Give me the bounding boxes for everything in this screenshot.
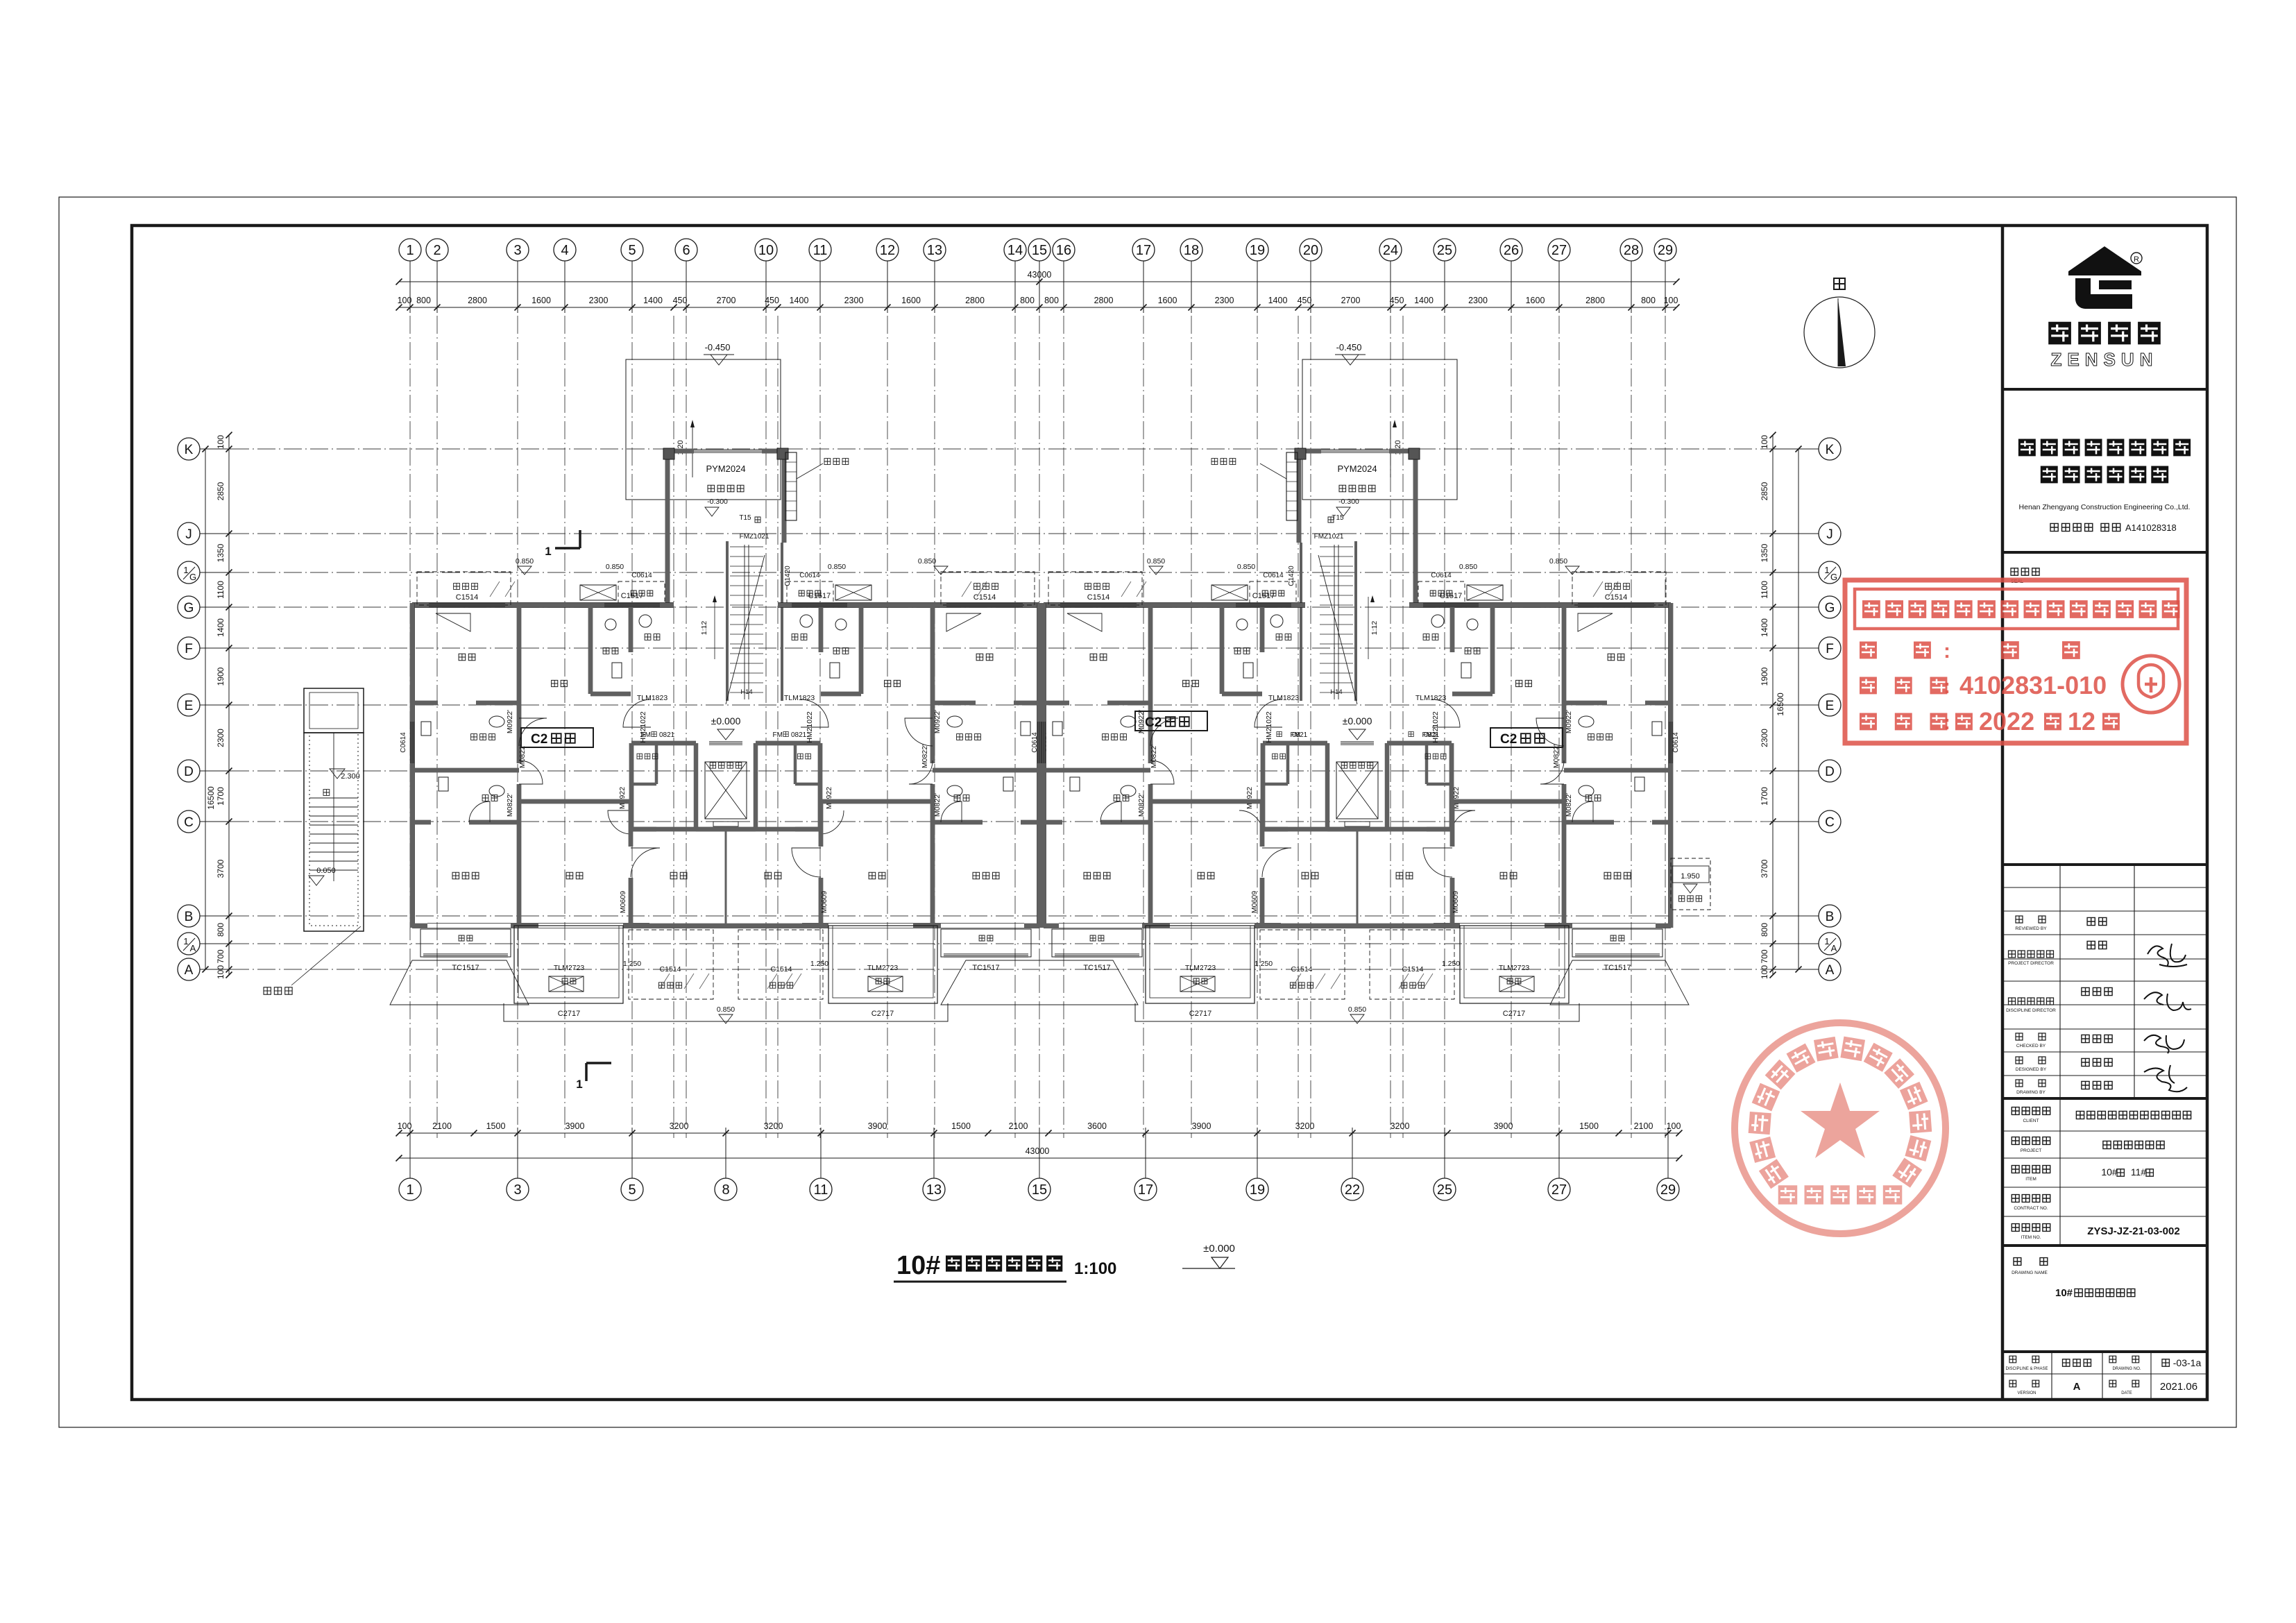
- svg-text:0.850: 0.850: [1549, 557, 1567, 566]
- svg-text:C0614: C0614: [1431, 572, 1452, 579]
- svg-text:1400: 1400: [1760, 618, 1769, 637]
- svg-text:M0609: M0609: [619, 891, 627, 913]
- svg-text:2800: 2800: [468, 296, 487, 305]
- svg-text:TC1517: TC1517: [1604, 964, 1631, 972]
- svg-text:VERSION: VERSION: [2017, 1391, 2036, 1395]
- svg-text:2800: 2800: [1094, 296, 1114, 305]
- svg-text:0.850: 0.850: [717, 1005, 735, 1014]
- svg-text:±0.000: ±0.000: [1343, 715, 1372, 726]
- svg-text:0.050: 0.050: [316, 867, 336, 875]
- svg-text:DISCIPLINE DIRECTOR: DISCIPLINE DIRECTOR: [2006, 1008, 2056, 1013]
- svg-text:TC1517: TC1517: [452, 964, 479, 972]
- svg-text:450: 450: [765, 296, 779, 305]
- svg-text:16500: 16500: [1776, 692, 1785, 716]
- svg-text:TLM2723: TLM2723: [1499, 964, 1530, 972]
- svg-text:4: 4: [561, 243, 568, 258]
- svg-text:G: G: [1825, 601, 1835, 615]
- svg-text:A: A: [1826, 963, 1835, 978]
- svg-text:0.850: 0.850: [1459, 563, 1477, 571]
- svg-text:REVIEWED BY: REVIEWED BY: [2015, 926, 2047, 931]
- svg-text:B: B: [1826, 910, 1835, 924]
- svg-text:24: 24: [1383, 243, 1398, 258]
- svg-text:C2717: C2717: [1189, 1010, 1211, 1018]
- svg-text:D: D: [1825, 765, 1835, 779]
- svg-text::: :: [1944, 711, 1950, 734]
- svg-text:1500: 1500: [486, 1121, 506, 1131]
- svg-text:TLM1823: TLM1823: [1415, 694, 1447, 702]
- svg-text:A: A: [1831, 943, 1837, 953]
- svg-text:18: 18: [1184, 243, 1199, 258]
- svg-text:3900: 3900: [1192, 1121, 1211, 1131]
- svg-text:1350: 1350: [216, 543, 226, 562]
- svg-text:22: 22: [1345, 1182, 1360, 1198]
- svg-text:C0614: C0614: [1031, 732, 1039, 753]
- svg-text:2300: 2300: [1215, 296, 1234, 305]
- svg-text:3600: 3600: [1087, 1121, 1107, 1131]
- svg-text:11: 11: [813, 243, 828, 258]
- svg-text:A141028318: A141028318: [2125, 522, 2177, 533]
- svg-text::: :: [1944, 675, 1950, 698]
- svg-text:2100: 2100: [432, 1121, 452, 1131]
- svg-text:C1514: C1514: [1291, 965, 1313, 974]
- svg-text:C: C: [184, 815, 194, 830]
- svg-text:M0609: M0609: [1452, 891, 1460, 913]
- svg-text:1: 1: [183, 565, 188, 575]
- svg-text:800: 800: [1760, 923, 1769, 937]
- svg-text:27: 27: [1551, 243, 1567, 258]
- svg-text:PYM2024: PYM2024: [706, 464, 745, 474]
- svg-text:1700: 1700: [216, 787, 226, 806]
- svg-text:C2: C2: [531, 732, 547, 747]
- svg-text:100: 100: [398, 1121, 412, 1131]
- svg-text:G: G: [184, 601, 194, 615]
- svg-text:TLM2723: TLM2723: [867, 964, 899, 972]
- svg-text:3900: 3900: [566, 1121, 585, 1131]
- svg-text:2850: 2850: [216, 482, 226, 500]
- svg-text:TC1517: TC1517: [1083, 964, 1110, 972]
- svg-text:100: 100: [216, 435, 226, 449]
- svg-text:C0614: C0614: [631, 572, 652, 579]
- svg-text:1.250: 1.250: [623, 960, 641, 968]
- svg-text:HM21022: HM21022: [1265, 711, 1273, 743]
- svg-text:E: E: [185, 699, 194, 713]
- svg-text:0.850: 0.850: [1237, 563, 1255, 571]
- svg-text:C1517: C1517: [808, 592, 831, 600]
- svg-text:C2717: C2717: [871, 1010, 894, 1018]
- svg-text:0821: 0821: [659, 731, 675, 739]
- svg-text:TLM1823: TLM1823: [1268, 694, 1300, 702]
- svg-text:800: 800: [1044, 296, 1059, 305]
- svg-text:±0.000: ±0.000: [1203, 1243, 1235, 1255]
- svg-text:F: F: [1826, 642, 1834, 656]
- svg-text:13: 13: [926, 1182, 942, 1198]
- svg-text:3200: 3200: [1295, 1121, 1315, 1131]
- svg-text:2100: 2100: [1634, 1121, 1653, 1131]
- svg-text:M0822': M0822': [518, 745, 527, 768]
- svg-text:1400: 1400: [216, 618, 226, 637]
- svg-text:DRAWING NO.: DRAWING NO.: [2112, 1367, 2141, 1371]
- svg-text:-0.450: -0.450: [1336, 342, 1362, 352]
- svg-text:DESIGNED BY: DESIGNED BY: [2016, 1067, 2047, 1072]
- svg-text:3: 3: [513, 243, 521, 258]
- svg-text:1: 1: [545, 545, 551, 558]
- svg-text:2.300: 2.300: [341, 772, 360, 781]
- svg-text:DRAWING BY: DRAWING BY: [2016, 1090, 2046, 1095]
- svg-text:43000: 43000: [1026, 1146, 1050, 1156]
- svg-text:10#: 10#: [2101, 1166, 2118, 1178]
- svg-text:C1514: C1514: [456, 593, 478, 602]
- svg-text:M0609: M0609: [820, 891, 828, 913]
- svg-text:CONTRACT NO.: CONTRACT NO.: [2014, 1206, 2048, 1211]
- svg-text:11: 11: [814, 1182, 828, 1198]
- svg-text:-0.300: -0.300: [1338, 498, 1359, 506]
- svg-text:TLM2723: TLM2723: [554, 964, 585, 972]
- svg-text:1: 1: [406, 1182, 414, 1198]
- svg-text:1600: 1600: [901, 296, 921, 305]
- svg-text:2800: 2800: [1585, 296, 1605, 305]
- svg-text:1350: 1350: [1760, 543, 1769, 562]
- svg-text:M0822': M0822': [933, 793, 942, 817]
- svg-text:1900: 1900: [216, 667, 226, 686]
- svg-text:H14: H14: [740, 688, 752, 696]
- svg-text:1700: 1700: [1760, 787, 1769, 806]
- svg-text:DATE: DATE: [2121, 1391, 2132, 1395]
- svg-text:1:12: 1:12: [700, 621, 708, 636]
- svg-text:1400: 1400: [643, 296, 663, 305]
- svg-text:2300: 2300: [844, 296, 864, 305]
- svg-text:C2717: C2717: [558, 1010, 580, 1018]
- svg-text:10#: 10#: [2055, 1287, 2073, 1299]
- svg-text:PROJECT: PROJECT: [2021, 1148, 2041, 1153]
- svg-text:1:100: 1:100: [1074, 1259, 1116, 1278]
- svg-text:1: 1: [1824, 565, 1829, 575]
- svg-text:K: K: [1826, 443, 1835, 457]
- svg-text:H14: H14: [1330, 688, 1342, 696]
- svg-text:TC1517: TC1517: [972, 964, 999, 972]
- svg-text:C2: C2: [1145, 715, 1162, 730]
- svg-text:C1420: C1420: [784, 566, 792, 586]
- svg-text:1: 1: [406, 243, 414, 258]
- svg-text:ITEM: ITEM: [2025, 1177, 2036, 1182]
- svg-text:4102831-010: 4102831-010: [1959, 671, 2107, 699]
- svg-text:FM: FM: [773, 731, 783, 739]
- svg-text:3700: 3700: [1760, 859, 1769, 878]
- svg-text:10: 10: [758, 243, 774, 258]
- svg-text:PYM2024: PYM2024: [1337, 464, 1377, 474]
- svg-text:2022: 2022: [1979, 707, 2034, 736]
- svg-text:DRAWING NAME: DRAWING NAME: [2012, 1271, 2048, 1275]
- svg-text:C1517: C1517: [621, 592, 643, 600]
- svg-text:3900: 3900: [868, 1121, 887, 1131]
- svg-text:1600: 1600: [1526, 296, 1545, 305]
- svg-text:C1514: C1514: [660, 965, 681, 974]
- svg-text:800: 800: [1020, 296, 1035, 305]
- svg-text:M0822': M0822': [1150, 745, 1158, 768]
- svg-text:M0922': M0922': [1565, 710, 1573, 733]
- svg-text:TLM1823: TLM1823: [637, 694, 668, 702]
- svg-text:C1514: C1514: [1605, 593, 1627, 602]
- svg-text:C1517: C1517: [1252, 592, 1275, 600]
- svg-text:2300: 2300: [1468, 296, 1488, 305]
- svg-text:M0922: M0922: [825, 787, 833, 809]
- svg-text:17: 17: [1136, 243, 1151, 258]
- svg-text:10#: 10#: [896, 1251, 940, 1280]
- svg-text:800: 800: [216, 923, 226, 937]
- svg-text:8: 8: [722, 1182, 729, 1198]
- svg-text:100: 100: [398, 296, 412, 305]
- svg-text:C2717: C2717: [1503, 1010, 1525, 1018]
- svg-text:800: 800: [1641, 296, 1656, 305]
- svg-text:1600: 1600: [1158, 296, 1177, 305]
- svg-text:100: 100: [1760, 435, 1769, 449]
- svg-text:0821: 0821: [1292, 731, 1308, 739]
- svg-text:ITEM NO.: ITEM NO.: [2021, 1235, 2041, 1240]
- svg-text:450: 450: [673, 296, 688, 305]
- svg-text:G: G: [1830, 572, 1837, 582]
- svg-text:2100: 2100: [1009, 1121, 1028, 1131]
- svg-text:B: B: [185, 910, 194, 924]
- svg-text:1: 1: [1824, 936, 1829, 946]
- svg-text:1.250: 1.250: [810, 960, 828, 968]
- svg-text:1:12: 1:12: [1370, 621, 1379, 636]
- svg-text:1.950: 1.950: [1681, 872, 1700, 881]
- svg-text:M0822': M0822': [506, 793, 514, 817]
- svg-text:M0609: M0609: [1250, 891, 1259, 913]
- svg-text:G: G: [189, 572, 196, 582]
- svg-text:1100: 1100: [1760, 581, 1769, 599]
- svg-text:F: F: [185, 642, 193, 656]
- svg-text:CLIENT: CLIENT: [2023, 1119, 2039, 1123]
- svg-text:M0822': M0822': [1137, 793, 1146, 817]
- svg-text:2021.06: 2021.06: [2160, 1381, 2197, 1393]
- svg-text:5: 5: [628, 243, 636, 258]
- svg-text:M0822': M0822': [1565, 793, 1573, 817]
- svg-text:1600: 1600: [532, 296, 551, 305]
- svg-text:2700: 2700: [717, 296, 736, 305]
- svg-text:A: A: [190, 943, 196, 953]
- svg-text:0821: 0821: [791, 731, 807, 739]
- svg-text:19: 19: [1250, 1182, 1265, 1198]
- svg-text:M0822': M0822': [921, 745, 929, 768]
- svg-text:HM21022: HM21022: [639, 711, 647, 743]
- svg-text:100: 100: [1760, 965, 1769, 979]
- svg-text:2300: 2300: [589, 296, 609, 305]
- svg-text:1400: 1400: [790, 296, 809, 305]
- svg-text:15: 15: [1032, 243, 1047, 258]
- svg-text:PROJECT DIRECTOR: PROJECT DIRECTOR: [2008, 961, 2054, 966]
- svg-text:0.850: 0.850: [1147, 557, 1165, 566]
- svg-text:Henan Zhengyang Construction E: Henan Zhengyang Construction Engineering…: [2019, 503, 2191, 511]
- svg-text:-03-1a: -03-1a: [2173, 1357, 2202, 1368]
- svg-text:3700: 3700: [216, 859, 226, 878]
- svg-text:M0922: M0922: [1245, 787, 1254, 809]
- svg-text:450: 450: [1390, 296, 1404, 305]
- svg-text:C1517: C1517: [1440, 592, 1462, 600]
- svg-text:DISCIPLINE & PHASE: DISCIPLINE & PHASE: [2005, 1367, 2048, 1371]
- svg-text:100: 100: [216, 965, 226, 979]
- svg-text:HM21022: HM21022: [1431, 711, 1440, 743]
- svg-text:3200: 3200: [670, 1121, 689, 1131]
- svg-text:C0614: C0614: [400, 732, 407, 753]
- svg-text:M0922': M0922': [506, 710, 514, 733]
- svg-text:A: A: [2073, 1381, 2081, 1393]
- svg-text:28: 28: [1624, 243, 1639, 258]
- svg-text:29: 29: [1658, 243, 1673, 258]
- svg-text:M0922: M0922: [618, 787, 627, 809]
- svg-text:1400: 1400: [1268, 296, 1288, 305]
- svg-text:100: 100: [1664, 296, 1678, 305]
- svg-text:17: 17: [1138, 1182, 1153, 1198]
- svg-text:1: 1: [183, 936, 188, 946]
- svg-text:CHECKED BY: CHECKED BY: [2016, 1044, 2046, 1048]
- svg-text:T15: T15: [739, 514, 751, 522]
- svg-text:HM21022: HM21022: [806, 711, 814, 743]
- svg-text:C2: C2: [1500, 732, 1517, 747]
- svg-text:11#: 11#: [2131, 1166, 2147, 1178]
- svg-text:1400: 1400: [1414, 296, 1434, 305]
- svg-text:±0.000: ±0.000: [711, 715, 741, 726]
- svg-text:0.850: 0.850: [516, 557, 534, 566]
- svg-text:25: 25: [1437, 243, 1452, 258]
- svg-text:100: 100: [1667, 1121, 1681, 1131]
- svg-text:16500: 16500: [206, 786, 216, 810]
- svg-text:2850: 2850: [1760, 482, 1769, 500]
- svg-text:C: C: [1825, 815, 1835, 830]
- svg-text:15: 15: [1032, 1182, 1047, 1198]
- svg-text:ZYSJ-JZ-21-03-002: ZYSJ-JZ-21-03-002: [2087, 1225, 2179, 1237]
- svg-text:C0614: C0614: [1672, 732, 1680, 753]
- svg-text:C1514: C1514: [973, 593, 996, 602]
- svg-text:0.850: 0.850: [606, 563, 624, 571]
- svg-text:1500: 1500: [1579, 1121, 1599, 1131]
- svg-text:700: 700: [1760, 949, 1769, 963]
- svg-text:M0822': M0822': [1552, 745, 1561, 768]
- svg-text:3200: 3200: [1391, 1121, 1410, 1131]
- svg-text:1.250: 1.250: [1442, 960, 1460, 968]
- svg-text:M0922': M0922': [933, 710, 942, 733]
- svg-text:12: 12: [2068, 707, 2095, 736]
- svg-text:C0614: C0614: [1263, 572, 1284, 579]
- svg-text:0.850: 0.850: [828, 563, 846, 571]
- svg-text:2300: 2300: [216, 729, 226, 747]
- svg-text:D: D: [184, 765, 194, 779]
- svg-text:C1420: C1420: [1288, 566, 1295, 586]
- svg-text:TLM1823: TLM1823: [784, 694, 815, 702]
- svg-text:E: E: [1826, 699, 1835, 713]
- svg-text:FMZ1021: FMZ1021: [740, 533, 769, 541]
- svg-text:FMZ1021: FMZ1021: [1314, 533, 1344, 541]
- svg-text:3: 3: [513, 1182, 521, 1198]
- svg-text:3900: 3900: [1494, 1121, 1513, 1131]
- svg-text:1.250: 1.250: [1255, 960, 1273, 968]
- svg-text:12: 12: [880, 243, 895, 258]
- svg-text:20: 20: [1303, 243, 1318, 258]
- svg-text:J: J: [185, 527, 192, 542]
- svg-text:C0614: C0614: [799, 572, 820, 579]
- svg-text:C1514: C1514: [1402, 965, 1424, 974]
- svg-text:14: 14: [1007, 243, 1023, 258]
- svg-text:J: J: [1826, 527, 1833, 542]
- svg-text::: :: [1944, 640, 1950, 663]
- svg-text:R: R: [2134, 255, 2139, 264]
- svg-text:26: 26: [1504, 243, 1519, 258]
- svg-text:0.850: 0.850: [1348, 1005, 1366, 1014]
- svg-text:TLM2723: TLM2723: [1185, 964, 1216, 972]
- svg-text:16: 16: [1056, 243, 1071, 258]
- svg-text:450: 450: [1298, 296, 1312, 305]
- svg-text:1900: 1900: [1760, 667, 1769, 686]
- svg-text:-0.450: -0.450: [705, 342, 731, 352]
- svg-text:19: 19: [1250, 243, 1265, 258]
- svg-text:-0.300: -0.300: [707, 498, 728, 506]
- svg-text:2: 2: [433, 243, 441, 258]
- svg-text:13: 13: [927, 243, 942, 258]
- svg-text:0.850: 0.850: [918, 557, 936, 566]
- svg-text:K: K: [185, 443, 194, 457]
- svg-text:5: 5: [628, 1182, 636, 1198]
- svg-text:C1514: C1514: [1087, 593, 1109, 602]
- svg-text:ZENSUN: ZENSUN: [2051, 349, 2159, 370]
- svg-text:2800: 2800: [965, 296, 985, 305]
- svg-text:27: 27: [1551, 1182, 1567, 1198]
- svg-text:800: 800: [416, 296, 431, 305]
- svg-text:C1514: C1514: [771, 965, 792, 974]
- svg-text:1: 1: [576, 1078, 582, 1091]
- svg-text:25: 25: [1437, 1182, 1452, 1198]
- svg-text:700: 700: [216, 949, 226, 963]
- svg-text:3200: 3200: [764, 1121, 783, 1131]
- svg-text:6: 6: [682, 243, 690, 258]
- svg-text:A: A: [185, 963, 194, 978]
- svg-text:2300: 2300: [1760, 729, 1769, 747]
- svg-text:2700: 2700: [1341, 296, 1361, 305]
- svg-text:29: 29: [1660, 1182, 1676, 1198]
- svg-text:1500: 1500: [951, 1121, 971, 1131]
- svg-text:1100: 1100: [216, 581, 226, 599]
